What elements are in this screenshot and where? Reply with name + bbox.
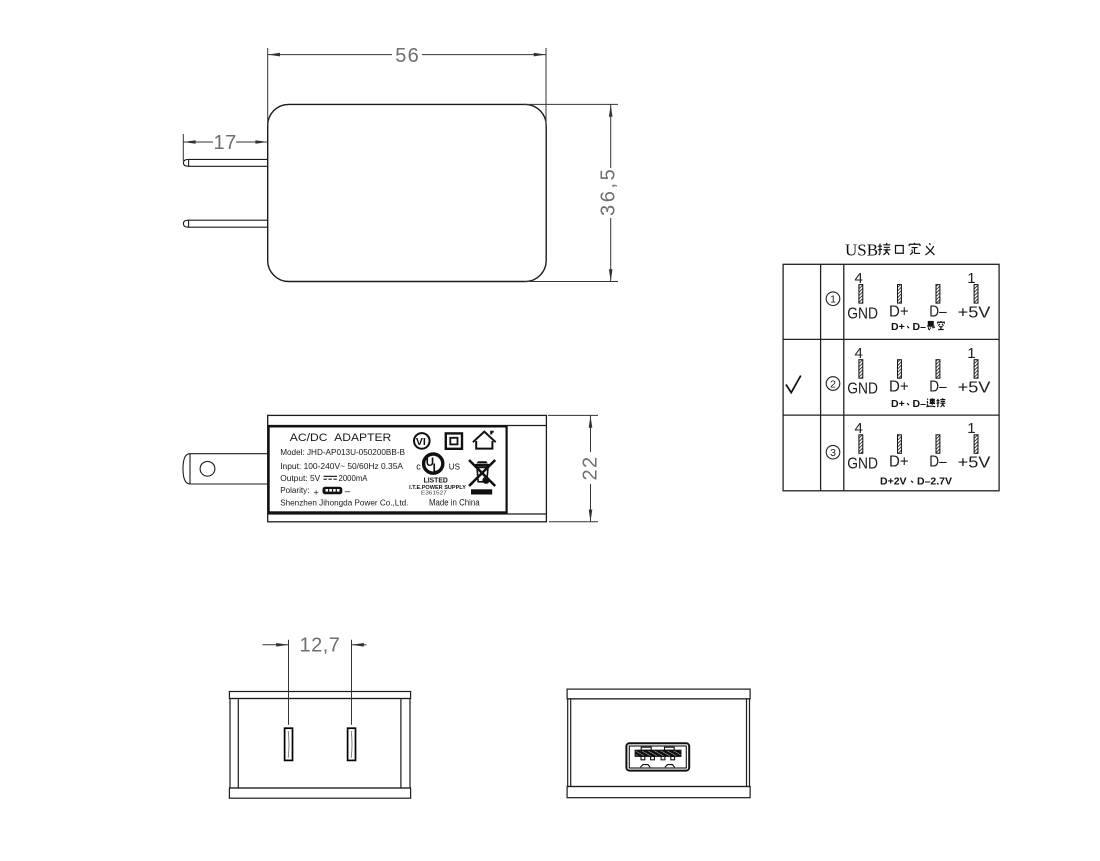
svg-text:L: L bbox=[433, 463, 440, 475]
svg-text:1: 1 bbox=[830, 294, 836, 306]
svg-text:Made in China: Made in China bbox=[429, 498, 480, 508]
svg-text:AC/DC ADAPTER: AC/DC ADAPTER bbox=[290, 432, 392, 444]
svg-text:17: 17 bbox=[214, 132, 237, 154]
svg-text:2000mA: 2000mA bbox=[339, 473, 368, 483]
svg-text:12,7: 12,7 bbox=[300, 635, 341, 657]
svg-text:US: US bbox=[449, 463, 460, 472]
svg-text:22: 22 bbox=[580, 455, 602, 480]
svg-text:GND: GND bbox=[847, 305, 878, 322]
svg-text:Input: 100-240V~ 50/60Hz 0.3: Input: 100-240V~ 50/60Hz 0.35A bbox=[280, 461, 403, 471]
svg-text:D–: D– bbox=[913, 398, 927, 410]
svg-text:E361527: E361527 bbox=[421, 491, 447, 497]
svg-text:3: 3 bbox=[830, 447, 836, 459]
svg-text:D+: D+ bbox=[889, 303, 909, 320]
svg-text:D–: D– bbox=[929, 303, 947, 320]
svg-text:D+: D+ bbox=[889, 378, 909, 395]
svg-text:D–2.7V: D–2.7V bbox=[917, 476, 952, 488]
svg-text:+: + bbox=[314, 487, 319, 497]
svg-text:+5V: +5V bbox=[958, 304, 992, 321]
svg-text:D–: D– bbox=[929, 378, 947, 395]
svg-text:D+2V: D+2V bbox=[880, 476, 907, 488]
svg-text:LISTED: LISTED bbox=[424, 475, 449, 484]
svg-text:+5V: +5V bbox=[958, 455, 992, 472]
svg-text:D–: D– bbox=[929, 454, 947, 471]
svg-text:Polarity:: Polarity: bbox=[280, 485, 309, 495]
svg-text:USB: USB bbox=[845, 241, 878, 260]
svg-text:Shenzhen Jihongda Power Co.,Lt: Shenzhen Jihongda Power Co.,Ltd. bbox=[280, 498, 408, 508]
svg-text:–: – bbox=[345, 487, 351, 498]
svg-text:Model: JHD-AP013U-050200BB-B: Model: JHD-AP013U-050200BB-B bbox=[280, 447, 405, 457]
svg-text:GND: GND bbox=[847, 456, 878, 473]
svg-text:+5V: +5V bbox=[958, 379, 992, 396]
svg-text:Output: 5V: Output: 5V bbox=[280, 473, 320, 483]
svg-text:56: 56 bbox=[395, 45, 420, 67]
svg-text:36,5: 36,5 bbox=[598, 167, 620, 216]
svg-text:2: 2 bbox=[830, 378, 836, 390]
svg-text:D+: D+ bbox=[891, 398, 905, 410]
svg-text:D–: D– bbox=[913, 321, 927, 333]
svg-text:VI: VI bbox=[416, 436, 426, 448]
svg-text:c: c bbox=[416, 462, 421, 472]
svg-text:GND: GND bbox=[847, 380, 878, 397]
svg-text:D+: D+ bbox=[889, 454, 909, 471]
svg-text:D+: D+ bbox=[891, 321, 905, 333]
